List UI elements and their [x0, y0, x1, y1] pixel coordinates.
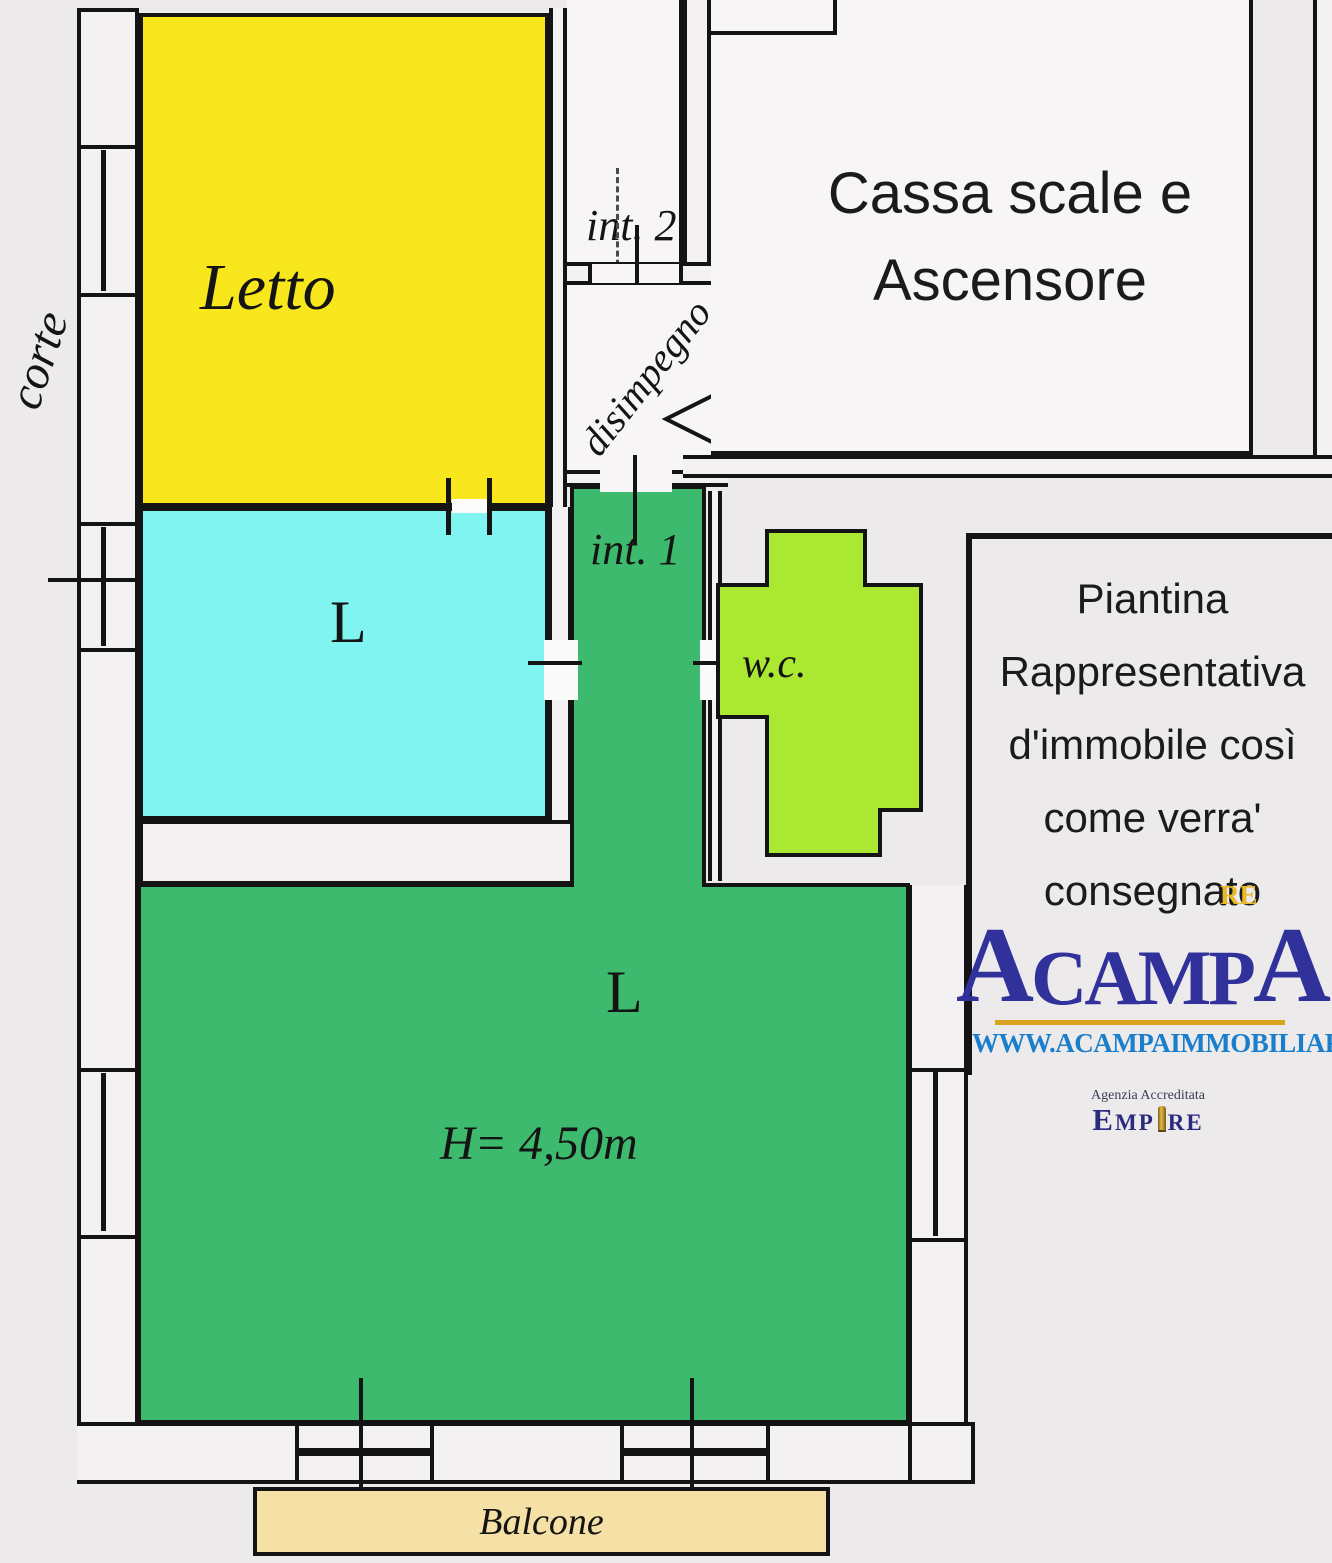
stairwell-notch-h [711, 31, 837, 35]
room-living-large-label: L [606, 958, 643, 1027]
wall-outer-right [1313, 0, 1332, 478]
annotation-line: come verra' [980, 781, 1325, 854]
wall-right-separator [908, 1068, 968, 1072]
window-left-3 [101, 1073, 106, 1231]
room-balcone-label: Balcone [479, 1500, 604, 1544]
window-bottom-1 [299, 1448, 430, 1456]
stairwell-notch-v [833, 0, 837, 35]
wall-bottom [77, 1422, 975, 1484]
stairwell-label-line1: Cassa scale e [780, 150, 1240, 237]
empire-logo-e: E [1092, 1102, 1115, 1138]
stairwell-label-line2: Ascensore [780, 237, 1240, 324]
wall-bottom-separator [908, 1422, 912, 1484]
acampa-re-tag: RE [1220, 880, 1258, 911]
column-icon [1158, 1106, 1166, 1130]
wall-cassa-left [683, 0, 711, 262]
room-letto-label: Letto [200, 250, 430, 326]
annotation-line: Piantina [980, 562, 1325, 635]
annotation-line: Rappresentativa [980, 635, 1325, 708]
wall-stairwell-bottom [683, 455, 1332, 478]
wall-left-separator [77, 145, 139, 149]
acampa-logo-middle: CAMP [1031, 937, 1253, 1020]
window-left-2 [101, 527, 106, 646]
door-gap-corridor-left [544, 640, 578, 700]
wall-letto-right [549, 8, 567, 507]
empire-logo: E MP RE [972, 1102, 1324, 1138]
annotation-line: d'immobile così [980, 708, 1325, 781]
wall-right-separator [908, 1238, 968, 1242]
room-corridor-label: int. 1 [590, 524, 710, 575]
wall-bottom-separator [430, 1422, 434, 1484]
room-wc [700, 515, 940, 875]
annotation-border-top [966, 533, 1332, 539]
acampa-website: WWW.ACAMPAIMMOBILIARE.IT [972, 1028, 1324, 1059]
window-right-1 [933, 1072, 938, 1236]
room-balcone: Balcone [253, 1487, 830, 1556]
window-bottom-2 [624, 1448, 766, 1456]
room-stairwell-label: Cassa scale e Ascensore [780, 150, 1240, 324]
empire-logo-re: RE [1168, 1110, 1204, 1136]
wall-left-separator [77, 293, 139, 297]
room-height-note: H= 4,50m [440, 1116, 680, 1171]
wall-bottom-separator [766, 1422, 770, 1484]
floor-plan: Letto int. 2 disimpegno Cassa scale e As… [0, 0, 1332, 1563]
logo-gold-underline [995, 1020, 1285, 1025]
empire-logo-mp: MP [1115, 1110, 1155, 1136]
door-tick-corridor-left [528, 661, 582, 665]
window-left-1 [101, 150, 106, 291]
acampa-logo-last-letter: A [1253, 912, 1328, 1020]
room-wc-label: w.c. [742, 640, 842, 688]
room-int2-label: int. 2 [586, 200, 696, 251]
acampa-logo-first-letter: A [956, 912, 1031, 1020]
